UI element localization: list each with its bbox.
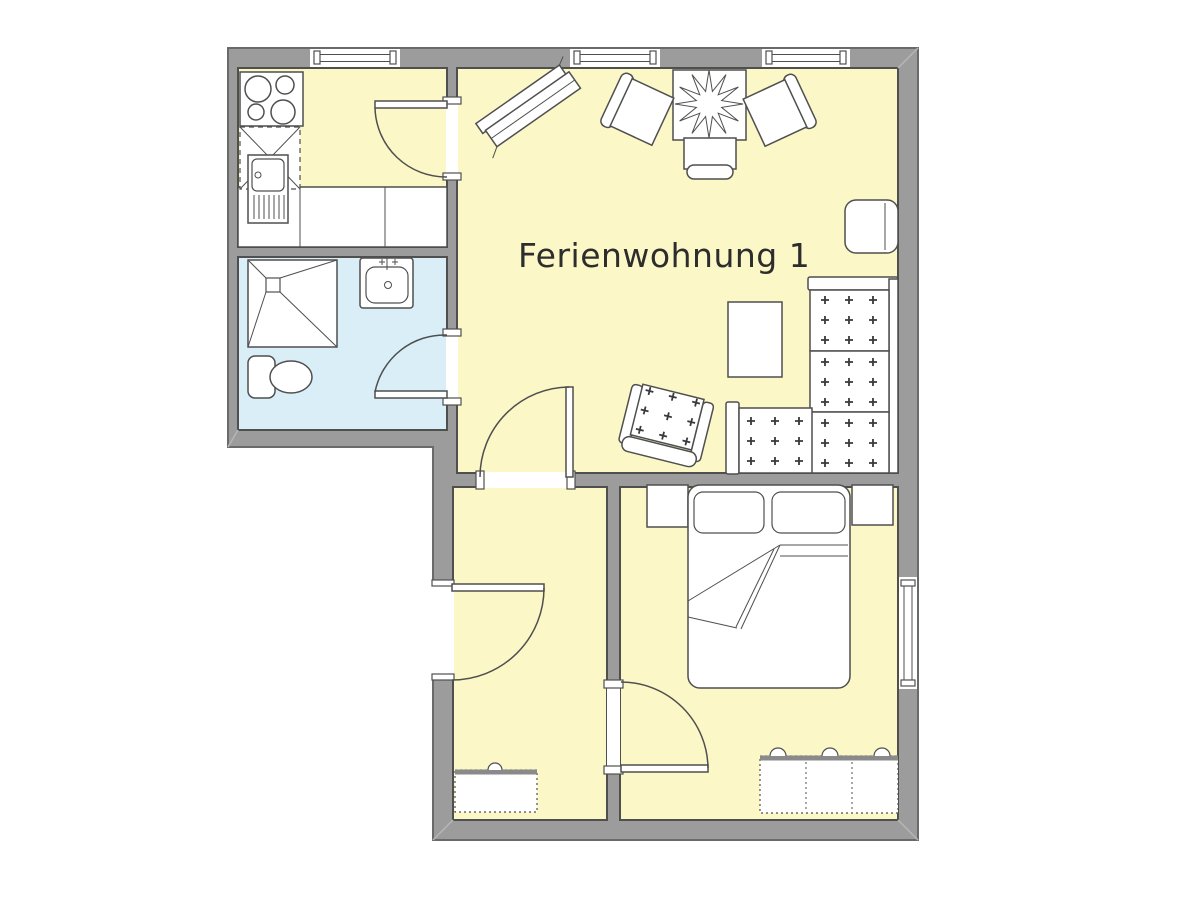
washbasin-icon [360,258,413,308]
nightstand-right [852,485,893,525]
dining-chair-bottom [684,138,736,179]
floor-plan-drawing [0,0,1200,900]
window-bedroom [899,577,917,689]
coffee-table [728,302,782,377]
pillow-left [694,492,764,533]
kitchen-sink-icon [248,155,288,223]
floor-plan: Ferienwohnung 1 [0,0,1200,900]
radiator-small-room [455,763,537,812]
shower-icon [248,260,337,347]
doorway-balcony [432,580,454,680]
stove-icon [240,72,303,126]
side-seat [845,200,898,253]
window-living-left [570,49,660,67]
window-living-right [762,49,850,67]
pillow-right [772,492,845,533]
window-kitchen [310,49,400,67]
double-bed [688,485,850,688]
dining-table [673,70,746,140]
wardrobe [760,748,898,813]
apartment-label: Ferienwohnung 1 [518,236,810,275]
nightstand-left [647,485,688,527]
doorway-small-room [476,471,575,489]
